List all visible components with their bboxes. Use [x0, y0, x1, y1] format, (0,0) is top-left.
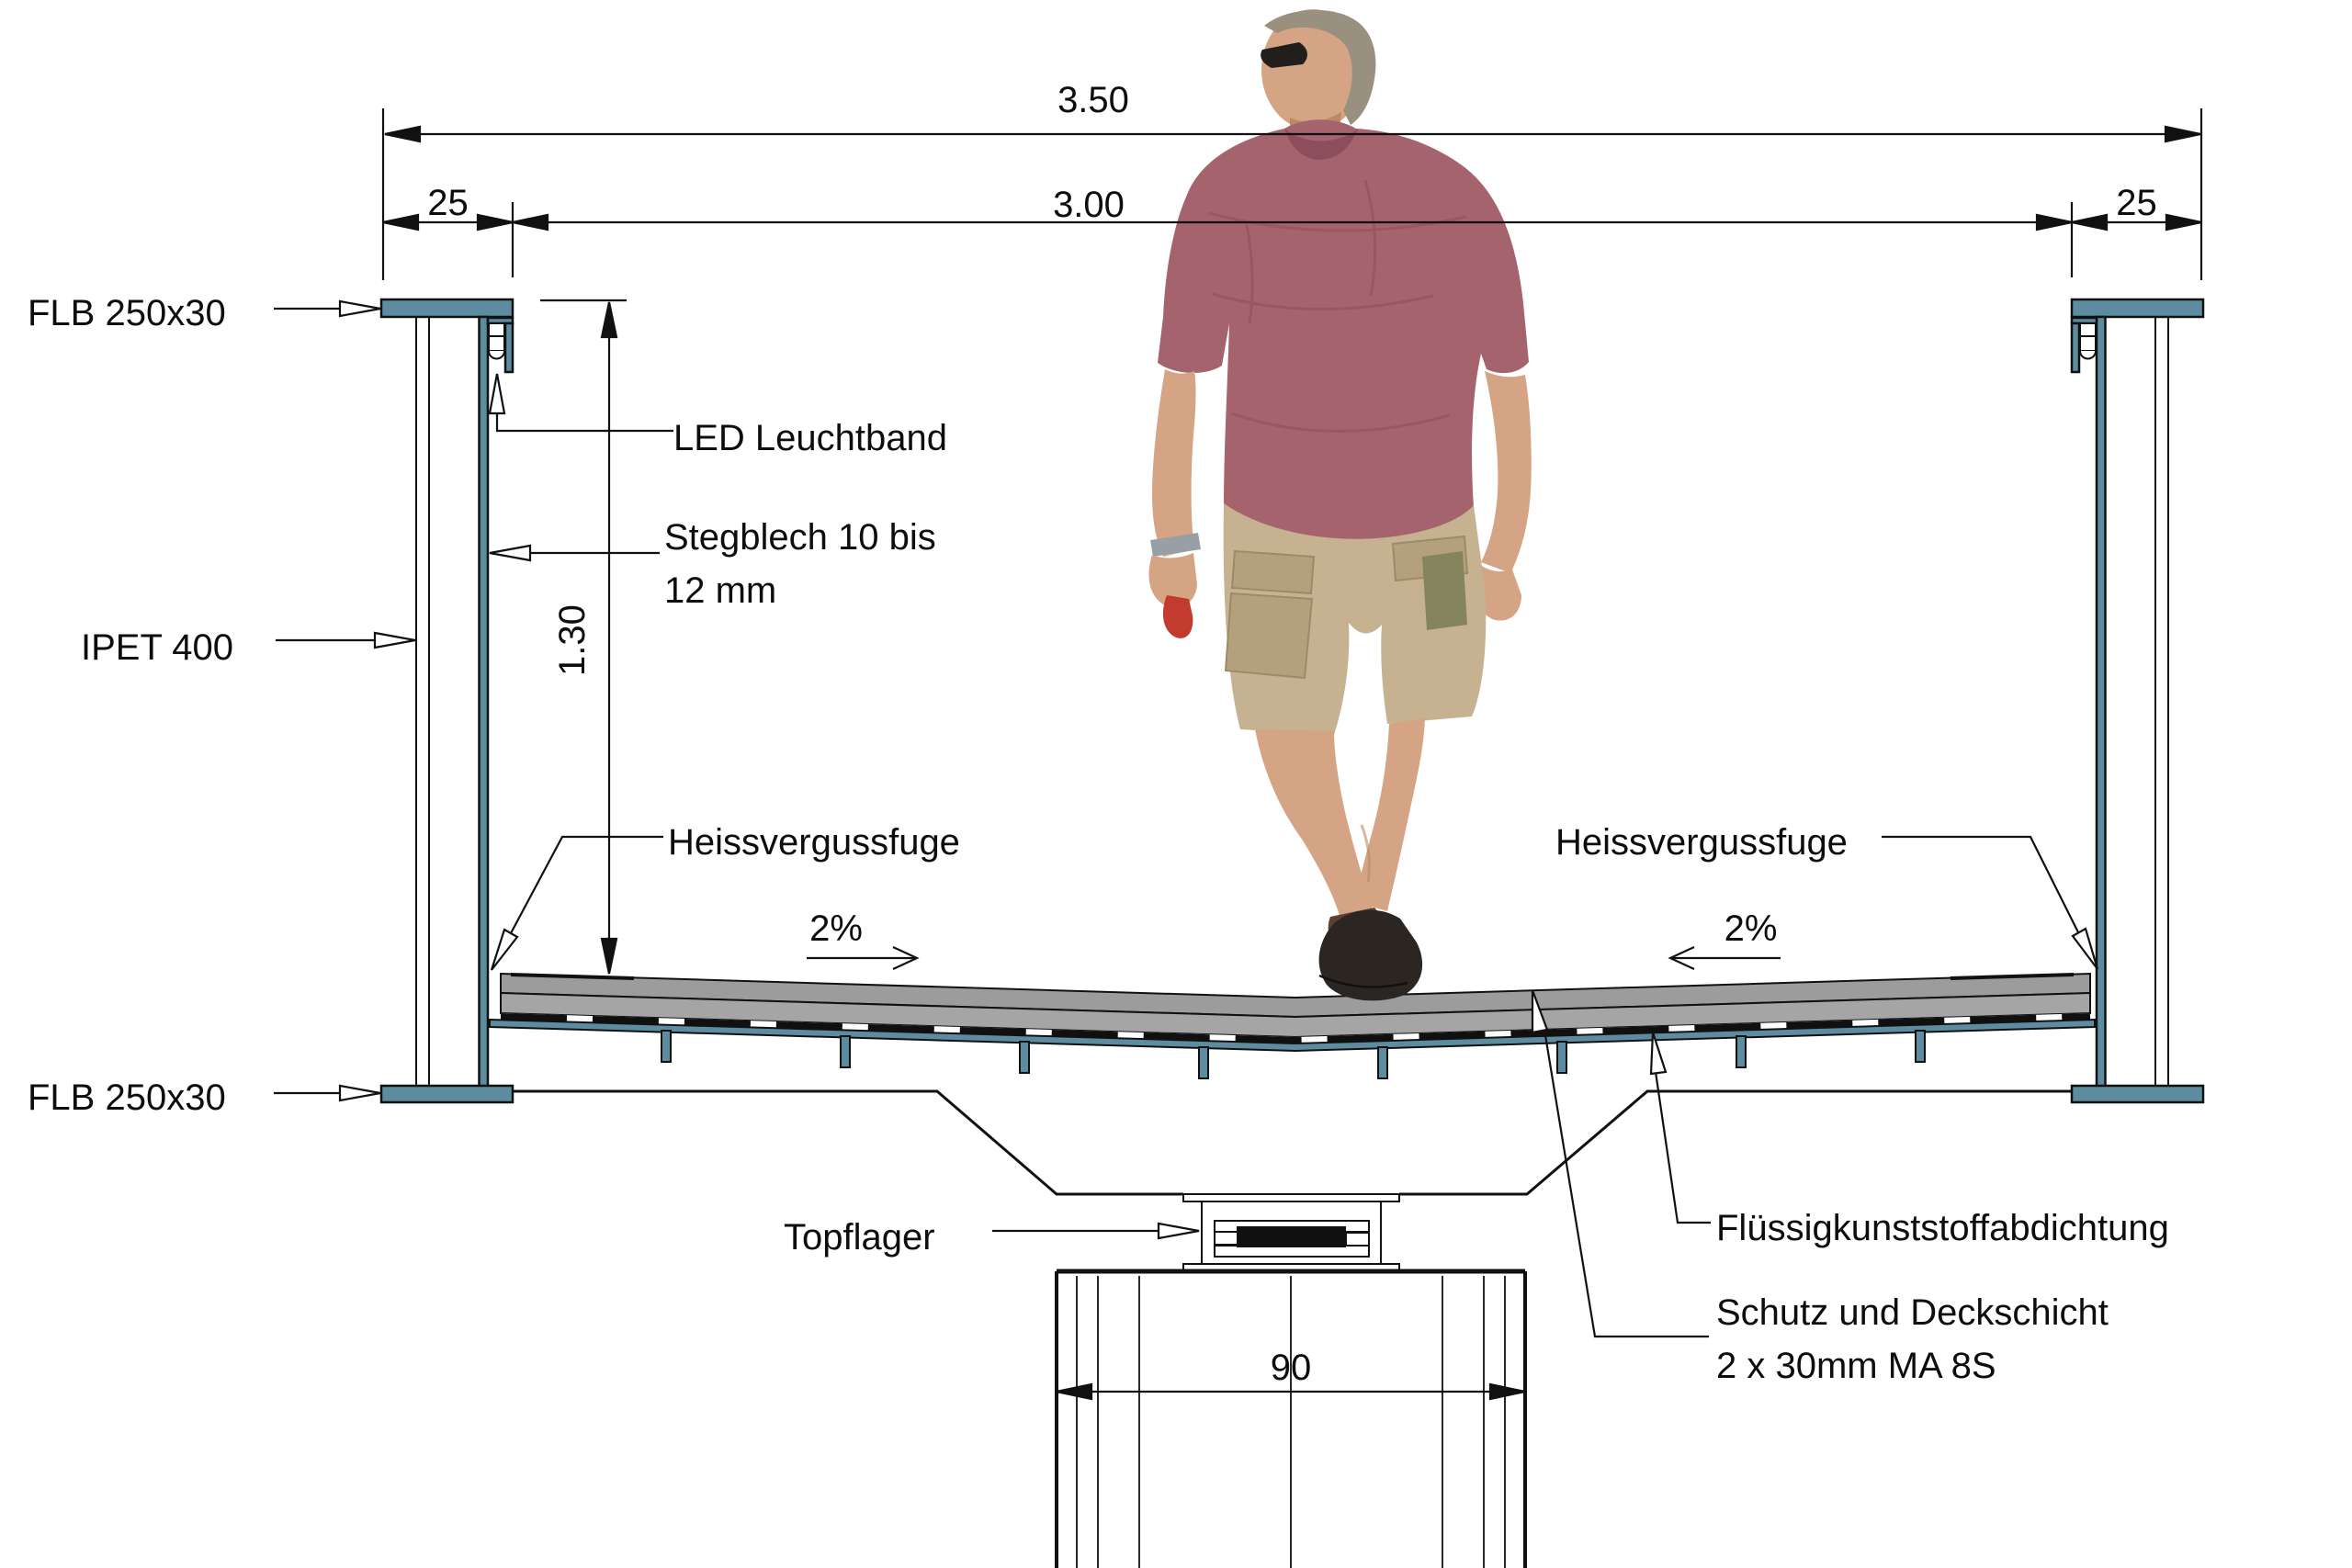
- led-bulb-left: [489, 351, 504, 359]
- label-led: LED Leuchtband: [673, 412, 947, 465]
- arm-left: [1152, 369, 1196, 557]
- leg-rear: [1255, 729, 1373, 919]
- arm-right: [1481, 371, 1532, 573]
- label-web-plate: Stegblech 10 bis 12 mm: [664, 511, 936, 617]
- leg-front: [1355, 718, 1425, 911]
- dim-clear-width-value: 3.00: [1015, 178, 1162, 231]
- led-bracket-side-right: [2072, 323, 2079, 372]
- dim-girder-height-value: 1.30: [546, 576, 599, 705]
- leader-joint-right: [1882, 837, 2098, 969]
- bottom-flange-left: [381, 1086, 513, 1102]
- leader-joint-left: [492, 837, 663, 970]
- girder-left: [381, 299, 513, 1102]
- leader-bearing: [992, 1224, 1199, 1238]
- shirt: [1158, 119, 1529, 541]
- leader-waterproofing: [1651, 1032, 1711, 1223]
- label-column: IPET 400: [81, 621, 233, 674]
- leader-column: [276, 633, 415, 648]
- cross-section-sheet: 3.50 25 3.00 25 1.30 90 FLB 250x30 LED L…: [0, 0, 2352, 1568]
- dim-pier-width-value: 90: [1236, 1341, 1346, 1394]
- ipet-column-right: [2155, 317, 2168, 1086]
- leader-flb-top-left: [274, 301, 380, 316]
- label-waterproofing: Flüssigkunststoffabdichtung: [1716, 1201, 2169, 1255]
- pocket-pouch: [1422, 551, 1467, 630]
- label-surfacing-line2: 2 x 30mm MA 8S: [1716, 1339, 2109, 1393]
- web-left: [480, 317, 489, 1091]
- leader-led: [490, 374, 673, 431]
- label-slope-left: 2%: [790, 902, 882, 955]
- bottom-flange-right: [2072, 1086, 2203, 1102]
- label-joint-left: Heissvergussfuge: [668, 816, 960, 869]
- bearing-top-plate: [1183, 1194, 1399, 1201]
- web-right: [2097, 317, 2106, 1091]
- led-bulb-right: [2080, 351, 2096, 359]
- label-flb-top-left: FLB 250x30: [28, 287, 226, 340]
- label-web-plate-line2: 12 mm: [664, 564, 936, 617]
- led-fixture-left: [489, 323, 504, 359]
- dim-flange-right-value: 25: [2072, 176, 2201, 230]
- label-web-plate-line1: Stegblech 10 bis: [664, 511, 936, 564]
- led-fixture-right: [2080, 323, 2096, 359]
- top-flange-left: [381, 299, 513, 317]
- label-surfacing-line1: Schutz und Deckschicht: [1716, 1286, 2109, 1339]
- held-item: [1163, 595, 1193, 638]
- label-flb-bottom-left: FLB 250x30: [28, 1071, 226, 1124]
- top-flange-right: [2072, 299, 2203, 317]
- haunch-outline: [513, 1091, 2072, 1194]
- label-bearing: Topflager: [784, 1211, 935, 1264]
- girder-right: [2072, 299, 2203, 1102]
- led-bracket-side-left: [505, 323, 513, 372]
- label-slope-right: 2%: [1707, 902, 1794, 955]
- leader-web-plate: [490, 546, 660, 560]
- label-joint-right: Heissvergussfuge: [1555, 816, 1848, 869]
- ipet-column-left: [416, 317, 429, 1086]
- leader-flb-bottom-left: [274, 1086, 380, 1100]
- dim-total-width-value: 3.50: [1020, 73, 1167, 127]
- deck: [490, 974, 2095, 1078]
- bearing-assembly: [1183, 1194, 1399, 1271]
- label-surfacing: Schutz und Deckschicht 2 x 30mm MA 8S: [1716, 1286, 2109, 1393]
- pedestrian-photo-figure: [1149, 9, 1532, 1000]
- dim-flange-left-value: 25: [383, 176, 513, 230]
- bearing-pad: [1238, 1227, 1345, 1247]
- pier: [1057, 1271, 1525, 1568]
